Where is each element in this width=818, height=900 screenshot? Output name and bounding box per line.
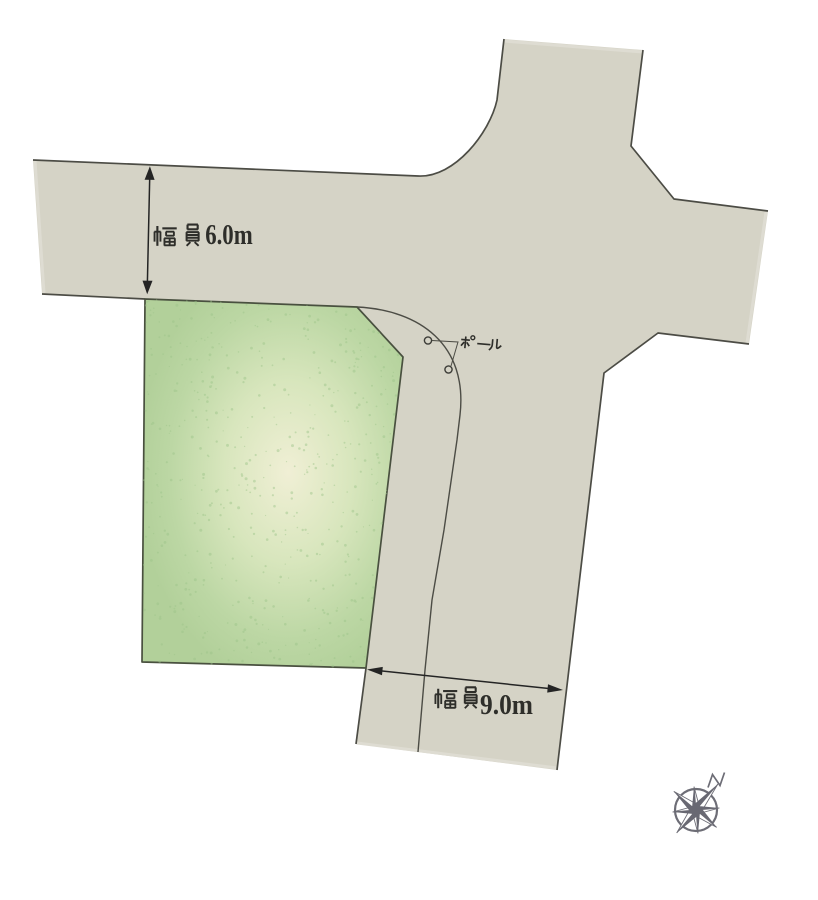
svg-text:6.0m: 6.0m [205,220,253,251]
svg-text:9.0m: 9.0m [480,689,533,721]
